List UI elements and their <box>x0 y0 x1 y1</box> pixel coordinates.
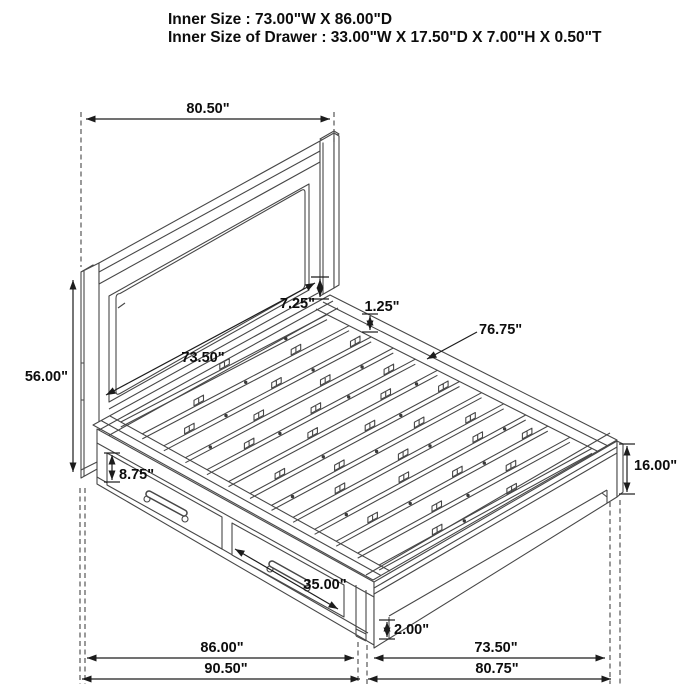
label-overall-depth: 90.50" <box>204 661 247 677</box>
label-rail-gap: 7.25" <box>280 296 315 312</box>
slat-screw-dot <box>291 495 294 498</box>
slat-screw-dot <box>278 432 281 435</box>
dim-slat-length-leader <box>427 332 477 359</box>
label-headboard-width: 80.50" <box>186 101 229 117</box>
slat-screw-dot <box>224 414 227 417</box>
slat-screw-dot <box>466 494 469 497</box>
slat-screw-dot <box>503 427 506 430</box>
label-headboard-inner-width: 73.50" <box>181 350 224 366</box>
label-foot-overall-width: 80.75" <box>475 661 518 677</box>
slat-screw-dot <box>244 381 247 384</box>
label-headboard-height: 56.00" <box>25 369 68 385</box>
slat-screw-dot <box>409 502 412 505</box>
slat-screw-dot <box>483 461 486 464</box>
slat-screw-dot <box>209 445 212 448</box>
slat-screw-dot <box>284 337 287 340</box>
slat-screw-dot <box>463 519 466 522</box>
headboard-top-rail <box>99 141 320 284</box>
label-leg-height: 16.00" <box>634 458 677 474</box>
slat-screw-dot <box>322 455 325 458</box>
bed-dimension-diagram: Inner Size : 73.00"W X 86.00"D Inner Siz… <box>0 0 700 700</box>
front-right-leg-side <box>617 441 623 497</box>
title-drawer-size: Inner Size of Drawer : 33.00"W X 17.50"D… <box>168 29 602 46</box>
label-drawer-height: 8.75" <box>119 467 154 483</box>
label-foot-inner-width: 73.50" <box>474 640 517 656</box>
headboard-right-post <box>320 133 334 296</box>
slat-screw-dot <box>347 395 350 398</box>
label-slat-length: 76.75" <box>479 322 522 338</box>
label-inner-depth: 86.00" <box>200 640 243 656</box>
diagram-canvas: Inner Size : 73.00"W X 86.00"D Inner Siz… <box>0 0 700 700</box>
label-drawer-width: 35.00" <box>303 577 346 593</box>
title-inner-size: Inner Size : 73.00"W X 86.00"D <box>168 11 392 28</box>
slat-screw-dot <box>428 444 431 447</box>
headboard-right-post-side <box>334 133 339 288</box>
slat-screw-dot <box>399 414 402 417</box>
slat-screw-dot <box>375 450 378 453</box>
slat-screw-dot <box>360 365 363 368</box>
slat-screw-dot <box>345 513 348 516</box>
label-slat-lip: 1.25" <box>364 299 399 315</box>
label-foot-clearance: 2.00" <box>394 622 429 638</box>
slat-screw-dot <box>311 368 314 371</box>
slat-screw-dot <box>415 382 418 385</box>
